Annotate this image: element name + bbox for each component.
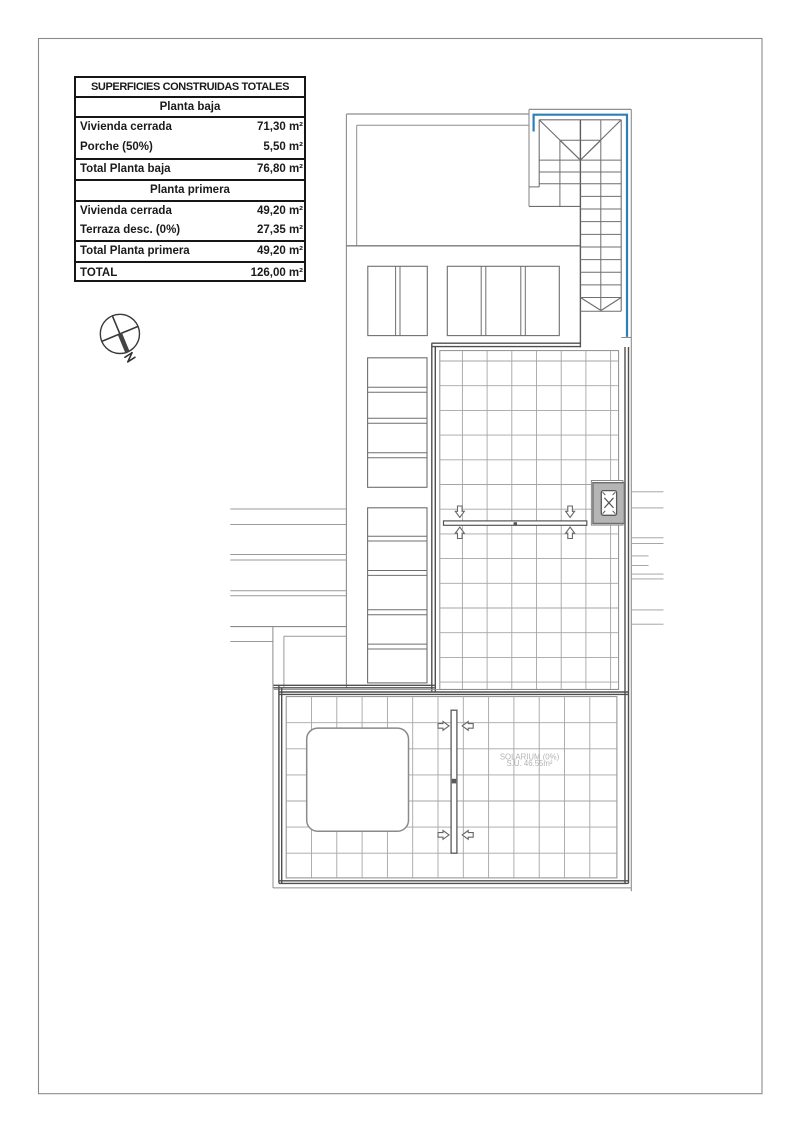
svg-text:S.U. 46.55m²: S.U. 46.55m² <box>507 759 553 768</box>
